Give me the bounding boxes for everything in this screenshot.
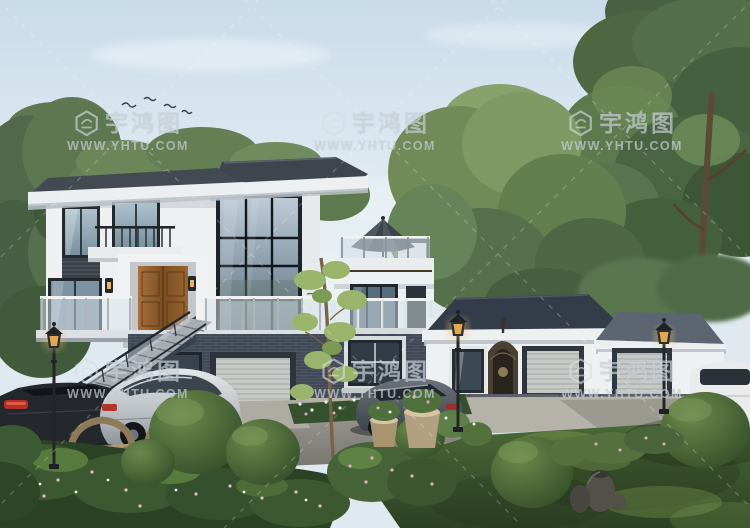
terrace-glass-railing — [334, 236, 434, 272]
window-upper-left — [62, 206, 100, 280]
wing-window — [449, 346, 487, 396]
entrance-wall-lamp-left — [105, 278, 113, 293]
scene-illustration — [0, 0, 750, 528]
architectural-rendering: 宇鸿图 WWW.YHTU.COM 宇鸿图 WWW.YHTU.COM 宇鸿图 WW… — [0, 0, 750, 528]
garage-door-1 — [522, 346, 584, 396]
window-upper-balcony — [112, 200, 160, 250]
entrance-wall-lamp-right — [188, 276, 196, 291]
